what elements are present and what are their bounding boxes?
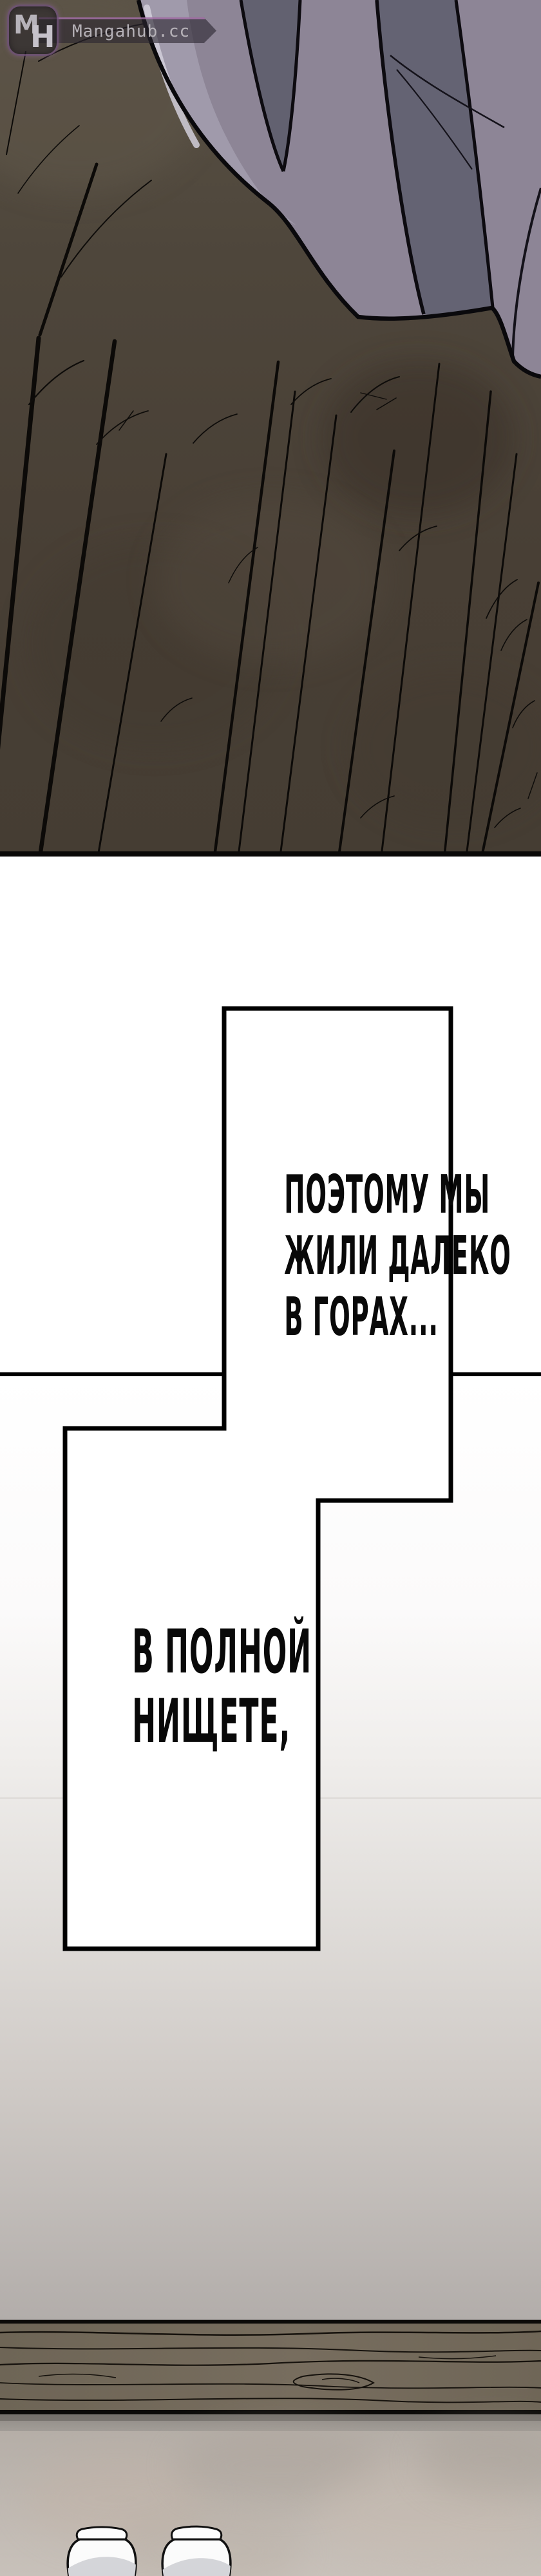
manga-page: Mangahub.cc M H [0,0,541,2576]
bubble1-line2: ЖИЛИ ДАЛЕКО [284,1226,390,1287]
watermark-banner: Mangahub.cc [39,17,216,43]
bubble1-line1: ПОЭТОМУ МЫ [284,1164,390,1226]
mangahub-logo-icon: M H [7,5,59,56]
wood-beam [0,2320,541,2414]
room-wall-background [0,1376,541,2321]
bubble1-line3: В ГОРАХ... [284,1287,390,1348]
bubble2-line1: В ПОЛНОЙ [132,1618,251,1687]
wall-shade-line [0,1797,541,1799]
room-scene-art [0,2318,541,2576]
logo-letter-h: H [30,19,55,54]
speech-bubble-1-text: ПОЭТОМУ МЫ ЖИЛИ ДАЛЕКО В ГОРАХ... [284,1164,390,1348]
panel-bottom-border [0,851,541,857]
floor-panel-art [0,0,541,857]
bubble2-line2: НИЩЕТЕ, [132,1687,251,1757]
speech-bubble-2-text: В ПОЛНОЙ НИЩЕТЕ, [132,1618,251,1757]
panel-border-line [0,1372,541,1376]
watermark-site-label: Mangahub.cc [72,22,190,41]
